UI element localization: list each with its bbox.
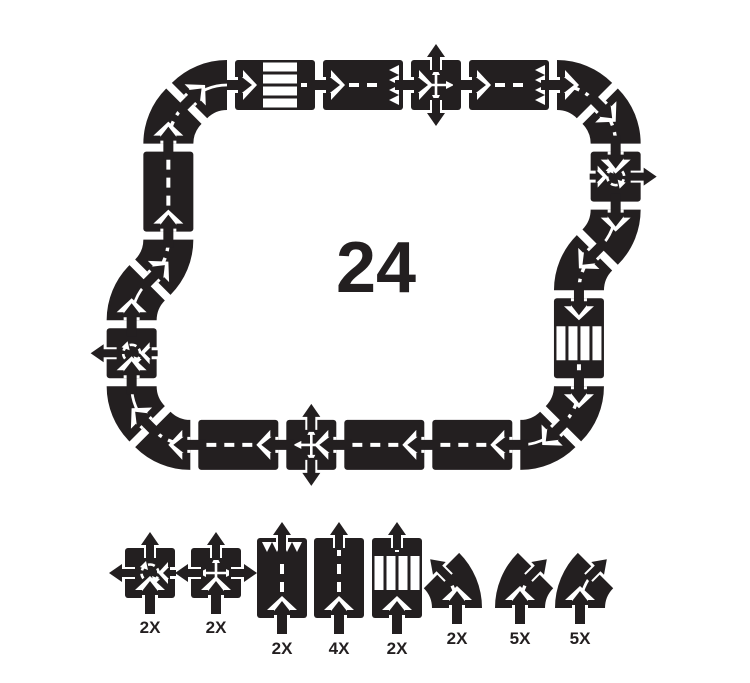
curve-right-solid-piece-icon: [555, 551, 615, 624]
legend-item-curve-right-solid: 5X: [555, 551, 615, 648]
track-piece-roundabout: [590, 136, 657, 202]
legend-count-label: 2X: [140, 618, 161, 637]
track-piece-straight: [344, 420, 440, 470]
track-piece-deadend: [453, 60, 549, 110]
track-piece-straight: [432, 420, 528, 470]
track-piece-straight: [143, 152, 193, 248]
track-set-canvas: 24 2X 2X 2X 4X 2X 2X 5X: [0, 0, 750, 683]
track-piece-crossroads: [395, 44, 461, 126]
legend-count-label: 5X: [570, 629, 591, 648]
legend-item-crosswalk-straight: 2X: [372, 522, 422, 658]
track-set-illustration: 24 2X 2X 2X 4X 2X 2X 5X: [0, 0, 750, 683]
legend-item-curve-right: 5X: [495, 551, 555, 648]
crosswalk-straight-piece-icon: [372, 522, 422, 634]
legend-item-curve-left: 2X: [422, 551, 482, 648]
curve-left-piece-icon: [422, 551, 482, 624]
legend-count-label: 5X: [510, 629, 531, 648]
legend-item-straight: 4X: [314, 522, 364, 658]
crossroads-piece-icon: [175, 532, 257, 614]
track-piece-roundabout: [91, 328, 158, 394]
roundabout-piece-icon: [109, 532, 176, 614]
legend: 2X 2X 2X 4X 2X 2X 5X 5X: [109, 522, 615, 658]
legend-count-label: 2X: [272, 639, 293, 658]
legend-item-crossroads: 2X: [175, 532, 257, 637]
straight-piece-icon: [314, 522, 364, 634]
deadend-straight-piece-icon: [257, 522, 307, 634]
piece-count: 24: [336, 228, 416, 308]
track-piece-crossroads: [286, 404, 352, 486]
legend-count-label: 4X: [329, 639, 350, 658]
legend-item-roundabout: 2X: [109, 532, 176, 637]
track-piece-crosswalk: [554, 282, 604, 378]
curve-right-piece-icon: [495, 551, 555, 624]
legend-count-label: 2X: [206, 618, 227, 637]
legend-count-label: 2X: [387, 639, 408, 658]
track-piece-deadend: [307, 60, 403, 110]
legend-count-label: 2X: [447, 629, 468, 648]
legend-item-deadend-straight: 2X: [257, 522, 307, 658]
track-piece-crosswalk: [219, 60, 315, 110]
track-piece-straight: [198, 420, 294, 470]
